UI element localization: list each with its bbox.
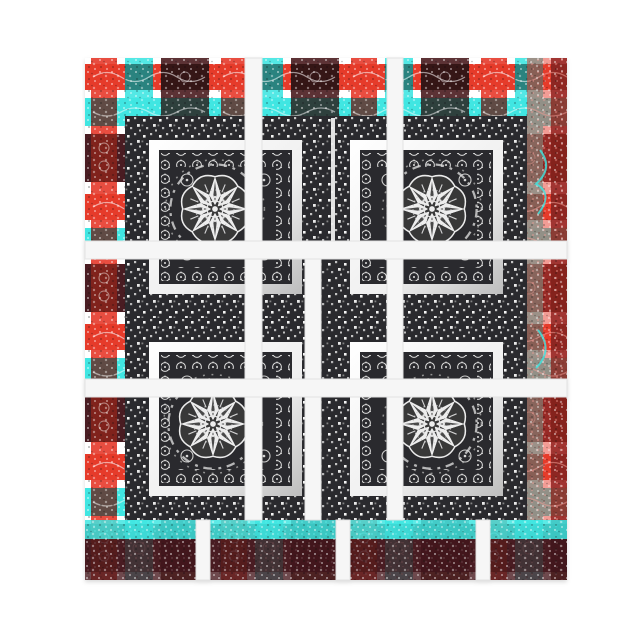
- bandana-panel: [125, 116, 527, 520]
- sash-vertical-left: [245, 58, 262, 520]
- product-photo: [0, 0, 644, 644]
- sash-bottom-gap-1: [196, 520, 210, 580]
- sash-horizontal-lower: [85, 379, 567, 397]
- sash-thin-line: [331, 118, 335, 241]
- sash-horizontal-upper: [85, 241, 567, 259]
- sash-bottom-gap-2: [336, 520, 350, 580]
- sash-bottom-gap-3: [476, 520, 490, 580]
- notepad: [85, 58, 567, 580]
- notepad-illustration: [0, 0, 644, 644]
- sash-vertical-right: [387, 58, 403, 520]
